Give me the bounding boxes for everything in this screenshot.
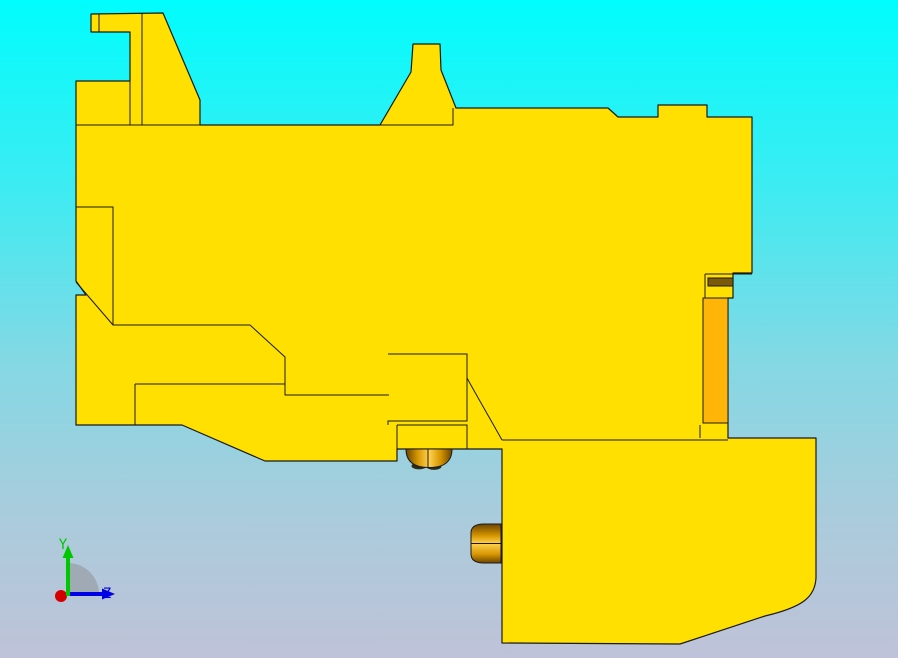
y-axis-label: Y [59, 537, 68, 553]
orange-insert-strip[interactable] [703, 298, 728, 423]
gold-bolt-plug[interactable] [471, 524, 501, 563]
z-axis-label: Z [103, 586, 111, 602]
cad-scene: Y Z [0, 0, 898, 658]
brown-insert-strip[interactable] [708, 278, 733, 286]
cad-viewport[interactable]: Y Z [0, 0, 898, 658]
x-axis-marker[interactable] [55, 590, 67, 602]
